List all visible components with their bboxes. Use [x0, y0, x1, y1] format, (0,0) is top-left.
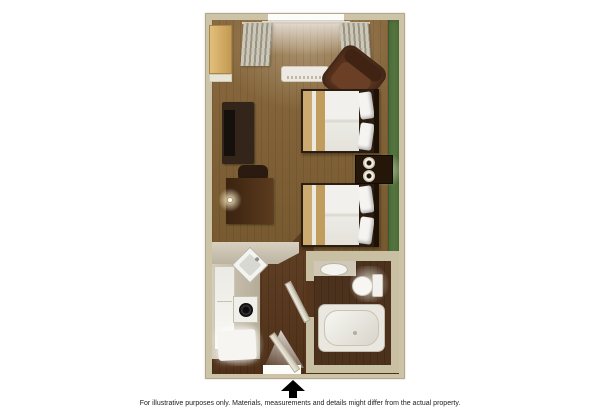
pillow — [357, 216, 375, 245]
pillow — [357, 122, 375, 151]
table-lamp — [363, 170, 375, 182]
stove — [233, 296, 258, 323]
disclaimer-text: For illustrative purposes only. Material… — [0, 400, 600, 407]
bed-runner-stripe — [303, 91, 312, 151]
closet — [209, 25, 232, 74]
window-light-spill — [262, 21, 350, 55]
refrigerator-door-line — [217, 301, 232, 302]
ac-vent — [287, 76, 323, 79]
tv-screen — [224, 110, 235, 156]
bathtub-basin — [324, 310, 379, 346]
desk-lamp — [227, 197, 233, 203]
pillow — [357, 91, 375, 120]
shelf — [209, 74, 232, 82]
floorplan-image: For illustrative purposes only. Material… — [0, 0, 600, 420]
double-bed-1 — [301, 89, 379, 153]
bed-headboard — [374, 183, 379, 247]
double-bed-2 — [301, 183, 379, 247]
floorplan — [205, 13, 405, 379]
toilet-bowl — [352, 276, 373, 296]
stove-burner — [239, 303, 253, 317]
green-accent-wall — [388, 20, 399, 262]
arrow-head — [281, 380, 305, 391]
bathroom-sink — [320, 263, 348, 276]
bathtub — [318, 304, 385, 352]
toilet-tank — [372, 274, 383, 297]
bed-runner-stripe — [316, 185, 325, 245]
bathroom-doorway — [306, 281, 314, 317]
table-lamp — [363, 157, 375, 169]
bed-duvet — [325, 91, 359, 151]
tv-cabinet — [222, 102, 254, 164]
arrow-stem — [289, 391, 297, 398]
lit-cabinet — [217, 329, 257, 361]
bed-duvet — [325, 185, 359, 245]
bathtub-drain — [353, 331, 357, 335]
bed-runner-stripe — [303, 185, 312, 245]
pillow — [357, 185, 375, 214]
curtain-left — [240, 23, 272, 66]
bed-runner-stripe — [316, 91, 325, 151]
window — [268, 14, 344, 21]
bed-headboard — [374, 89, 379, 153]
entrance-arrow-icon — [281, 380, 305, 398]
